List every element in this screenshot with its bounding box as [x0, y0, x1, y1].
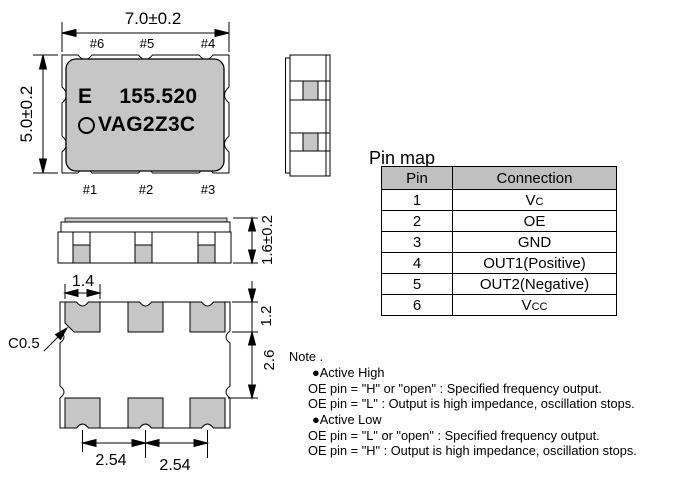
arrowhead	[249, 332, 256, 345]
chamfer-label: C0.5	[8, 336, 40, 353]
arrowhead	[62, 30, 76, 37]
pin-map-header-pin: Pin	[382, 167, 453, 190]
pin1-mark-icon	[78, 117, 95, 134]
pin-label-2: #2	[131, 183, 161, 197]
note-active-high-heading: ●Active High	[312, 366, 384, 380]
arrowhead	[249, 289, 256, 302]
arrowhead	[215, 30, 229, 37]
pin-label-4: #4	[193, 37, 223, 51]
dim-pad-width: 1.4	[63, 273, 103, 291]
note-title: Note .	[289, 350, 323, 364]
note-line: OE pin = "L" or "open" : Specified frequ…	[308, 429, 600, 443]
note-line: OE pin = "H" : Output is high impedance,…	[308, 444, 637, 458]
note-active-low-heading: ●Active Low	[312, 413, 382, 427]
front-view-lid	[65, 218, 227, 222]
pin-map-body: 1VC2OE3GND4OUT1(Positive)5OUT2(Negative)…	[382, 190, 617, 316]
dim-pad-gap: 2.6	[262, 340, 278, 380]
note-line: OE pin = "L" : Output is high impedance,…	[308, 397, 635, 411]
arrowhead	[40, 159, 47, 173]
dim-width: 7.0±0.2	[108, 10, 198, 29]
bottom-pad-3	[190, 302, 225, 332]
package-marking: E 155.520 VAG2Z3C	[78, 85, 197, 137]
bottom-pad-5	[128, 398, 163, 428]
pin-map-header-connection: Connection	[453, 167, 617, 190]
pin-number-cell: 3	[382, 232, 453, 253]
connection-cell: OUT1(Positive)	[453, 253, 617, 274]
pin-label-3: #3	[193, 183, 223, 197]
side-view-pad	[303, 81, 318, 100]
front-view-pad	[135, 245, 152, 263]
front-view-pad	[73, 245, 90, 263]
pin-map-row: 3GND	[382, 232, 617, 253]
marking-frequency: 155.520	[119, 85, 197, 109]
marking-vendor-code: E	[78, 85, 92, 109]
pin-label-1: #1	[75, 183, 105, 197]
bottom-pad-4	[65, 398, 100, 428]
pin-map-row: 2OE	[382, 211, 617, 232]
connection-cell: GND	[453, 232, 617, 253]
pin-number-cell: 4	[382, 253, 453, 274]
arrowhead	[146, 440, 160, 447]
arrowhead	[132, 440, 146, 447]
arrowhead	[249, 250, 256, 263]
front-view-step	[61, 222, 230, 232]
arrowhead	[194, 440, 208, 447]
bottom-pad-6	[190, 398, 225, 428]
arrowhead	[249, 218, 256, 231]
side-view-body	[290, 55, 330, 176]
pin-map-row: 6VCC	[382, 295, 617, 316]
connection-cell: OE	[453, 211, 617, 232]
arrowhead	[40, 55, 47, 69]
pin-map-header-row: Pin Connection	[382, 167, 617, 190]
connection-cell: OUT2(Negative)	[453, 274, 617, 295]
arrowhead	[83, 440, 97, 447]
bottom-pad-2	[128, 302, 163, 332]
pin-number-cell: 2	[382, 211, 453, 232]
marking-part-code: VAG2Z3C	[98, 113, 195, 137]
pin-map-row: 1VC	[382, 190, 617, 211]
note-line: OE pin = "H" or "open" : Specified frequ…	[308, 382, 602, 396]
dim-height: 5.0±0.2	[18, 69, 36, 159]
dim-pitch-right: 2.54	[155, 457, 195, 475]
oscillator-package-drawing: 7.0±0.2 5.0±0.2 #6 #5 #4 #1 #2 #3 E 155.…	[0, 0, 677, 482]
connection-cell: VC	[453, 190, 617, 211]
arrowhead	[249, 385, 256, 398]
dim-pad-height: 1.2	[259, 296, 275, 336]
pin-map-row: 4OUT1(Positive)	[382, 253, 617, 274]
pin-number-cell: 5	[382, 274, 453, 295]
pin-number-cell: 6	[382, 295, 453, 316]
bottom-pad-1-chamfered	[65, 302, 100, 332]
dim-pitch-left: 2.54	[91, 452, 131, 470]
pin-number-cell: 1	[382, 190, 453, 211]
pin-label-5: #5	[132, 37, 162, 51]
dim-thickness: 1.6±0.2	[260, 195, 276, 285]
pin-map-table: Pin Connection 1VC2OE3GND4OUT1(Positive)…	[381, 166, 617, 316]
side-view-pad	[303, 133, 318, 151]
pin-label-6: #6	[82, 37, 112, 51]
connection-cell: VCC	[453, 295, 617, 316]
front-view-pad	[198, 245, 215, 263]
pin-map-row: 5OUT2(Negative)	[382, 274, 617, 295]
